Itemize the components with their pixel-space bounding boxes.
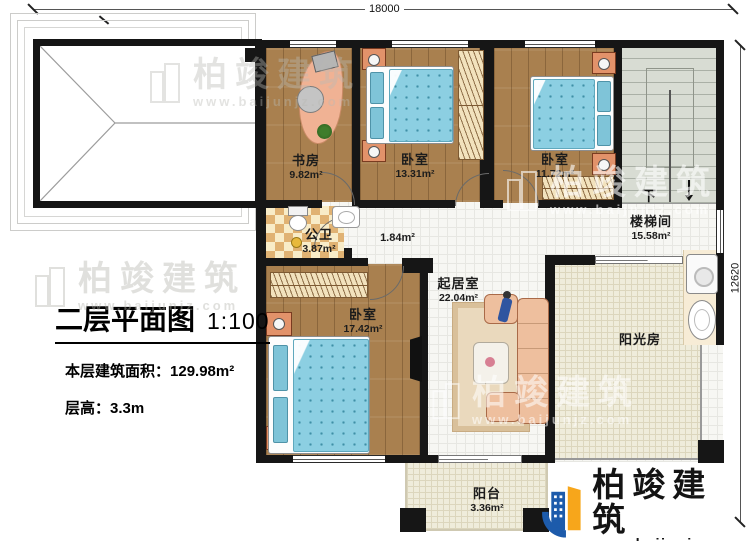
title-block: 二层平面图1:100 本层建筑面积：129.98m² 层高：3.3m [55,298,270,418]
room-label-bedroom3: 卧室 17.42m² [318,307,408,336]
wardrobe [458,50,484,160]
brand-website: www.baijunjz.com [592,537,750,541]
room-label-stair-hall: 楼梯间 15.58m² [606,214,696,243]
sliding-door [438,455,522,463]
stairs-arrow [688,180,690,195]
bed [268,336,370,454]
room-label-bathroom: 公卫 3.87m² [288,227,350,256]
pillow [597,81,611,112]
pillow [370,72,384,104]
floor-area-line: 本层建筑面积：129.98m² [55,360,270,381]
sliding-door [595,256,683,264]
office-chair [297,86,324,113]
wall [487,200,503,208]
room-label-corridor: 1.84m² [370,232,425,246]
coffee-table [473,342,509,384]
duvet [293,339,369,452]
plan-title: 二层平面图1:100 [55,298,270,344]
tv [410,336,422,382]
sink-basin [338,211,355,224]
room-label-study: 书房 9.82m² [262,153,350,182]
sofa [517,298,549,424]
bathroom-sink [332,206,360,228]
dimension-top-label: 18000 [365,3,404,15]
brand-logo: 柏竣建筑 www.baijunjz.com [533,468,750,541]
window [716,210,724,253]
nightstand [266,312,292,336]
room-label-sunroom: 阳光房 [600,332,680,348]
wall [385,455,438,463]
pillow [370,107,384,139]
duvet [389,69,453,142]
wall [354,200,455,208]
wall [352,46,360,208]
washer-door [694,267,714,287]
brand-text: 柏竣建筑 www.baijunjz.com [592,468,750,541]
room-label-balcony: 阳台 3.36m² [452,486,522,515]
wall [256,455,293,463]
pillow [273,397,288,443]
balcony-post [400,508,426,532]
bed [366,66,454,144]
duvet [533,79,595,149]
brand-name: 柏竣建筑 [592,468,750,537]
laundry-sink [688,300,716,340]
sink-basin [694,309,710,331]
armchair [486,392,520,422]
room-label-bedroom2: 卧室 11.72m² [510,152,600,181]
washing-machine [686,254,718,294]
bed [530,76,614,151]
window [290,40,336,48]
wall [538,200,622,208]
roof-hip-lines [40,46,255,201]
stairs-down-label: 下 [642,186,656,206]
pillow [273,345,288,391]
room-label-bedroom1: 卧室 13.31m² [370,152,460,181]
wardrobe [270,272,368,298]
stairs-arrowhead [685,195,693,201]
dimension-right-label: 12620 [729,259,741,298]
stairs [622,46,716,204]
sunroom-post [698,440,724,463]
window [525,40,595,48]
sunroom-floor [553,263,700,459]
nightstand [592,52,616,74]
table-decor [485,357,495,367]
pillow [597,115,611,146]
floor-plan: 18000 12620 [0,0,750,541]
stairs-rail [669,90,671,202]
wall [468,40,525,48]
window [392,40,468,48]
wall [402,258,433,273]
floor-height-line: 层高：3.3m [55,397,270,418]
wall [522,455,555,463]
room-label-living: 起居室 22.04m² [406,276,511,305]
roof-outline [33,39,262,208]
plan-scale: 1:100 [207,308,270,334]
wall [336,40,392,48]
wall [258,258,368,266]
wall-right [716,40,724,210]
brand-logo-icon [533,482,584,540]
plant [317,124,332,139]
window [293,455,385,463]
sunroom-glass-wall [553,458,702,460]
